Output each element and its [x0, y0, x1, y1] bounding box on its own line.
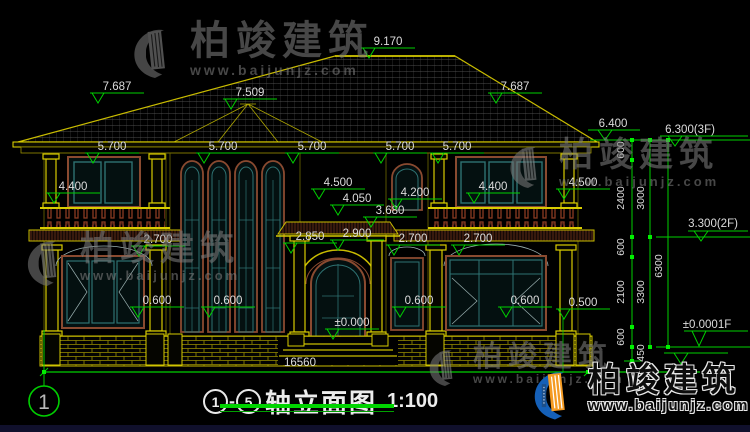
dim-mark	[453, 245, 465, 255]
company-url: www.baijunjz.com	[588, 397, 749, 414]
dim-mark	[332, 205, 344, 215]
axis-bubble-label: 1	[38, 391, 50, 414]
dim-label-k0000: ±0.000	[334, 317, 369, 329]
dim-label-k3680: 3.680	[376, 205, 405, 217]
dim-label-k5700: 5.700	[443, 141, 472, 153]
brick-plinth	[40, 334, 592, 366]
dim-mark	[287, 153, 299, 163]
dim-mark	[375, 153, 387, 163]
dim-label-total: 16560	[284, 357, 316, 369]
second-floor-windows	[68, 157, 546, 207]
dim-label-k4400: 4.400	[59, 181, 88, 193]
dim-label-k5700: 5.700	[298, 141, 327, 153]
dim-label-k4500: 4.500	[324, 177, 353, 189]
dim-label-k0600: 0.600	[143, 295, 172, 307]
dim-label-v3300: 3300	[635, 280, 647, 304]
dim-label-k9170: 9.170	[374, 36, 403, 48]
dim-label-v2400: 2400	[615, 186, 627, 210]
bottom-strip	[0, 425, 750, 432]
dim-label-k0000_1f: ±0.0001F	[683, 319, 732, 331]
drawing-scale: 1:100	[387, 390, 438, 413]
dim-label-k2850: 2.850	[296, 231, 325, 243]
company-brand: 柏竣建筑	[588, 363, 749, 396]
dim-label-k5700: 5.700	[209, 141, 238, 153]
dim-label-k3300_2f: 3.300(2F)	[688, 218, 738, 230]
dim-label-k4400: 4.400	[479, 181, 508, 193]
dim-label-k0600: 0.600	[214, 295, 243, 307]
dim-label-v3000: 3000	[635, 186, 647, 210]
dim-label-k2700: 2.700	[464, 233, 493, 245]
dim-label-k4200: 4.200	[401, 187, 430, 199]
title-underline	[220, 404, 394, 408]
dim-label-v2100: 2100	[615, 280, 627, 304]
dim-label-k6400: 6.400	[599, 118, 628, 130]
dim-label-k5700: 5.700	[98, 141, 127, 153]
company-logo: 柏竣建筑 www.baijunjz.com	[528, 363, 749, 423]
dim-mark	[198, 153, 210, 163]
dim-label-k2700: 2.700	[399, 233, 428, 245]
dim-mark	[313, 189, 325, 199]
dim-label-k4500: 4.500	[569, 177, 598, 189]
drawing-title: 轴立面图	[265, 383, 377, 420]
dim-label-k0500: 0.500	[569, 297, 598, 309]
dim-mark	[92, 93, 104, 103]
title-underline-thin	[220, 411, 394, 412]
dim-label-k7687: 7.687	[501, 81, 530, 93]
dim-label-v6300: 6300	[653, 254, 665, 278]
dim-label-v600: 600	[615, 141, 627, 159]
dim-label-k6300_3f: 6.300(3F)	[665, 124, 715, 136]
cad-canvas: 1 9.1707.6877.5097.6876.4006.300(3F)5.70…	[0, 0, 750, 432]
dim-label-v600: 600	[615, 238, 627, 256]
company-logo-icon	[528, 363, 582, 423]
dim-label-k4050: 4.050	[343, 193, 372, 205]
dim-label-v600: 600	[615, 328, 627, 346]
dim-label-k0600: 0.600	[511, 295, 540, 307]
dim-label-k5700: 5.700	[386, 141, 415, 153]
title-axis-dash: -	[229, 391, 235, 412]
drawing-title-block: 1 - 5 轴立面图 1:100	[203, 383, 438, 420]
dim-label-k7687: 7.687	[103, 81, 132, 93]
dim-label-k2900: 2.900	[343, 228, 372, 240]
dim-label-k7509: 7.509	[236, 87, 265, 99]
dim-label-k2700: 2.700	[144, 234, 173, 246]
dim-label-v450: 450	[635, 344, 647, 362]
dim-mark	[332, 240, 344, 250]
dim-label-k0600: 0.600	[405, 295, 434, 307]
main-hip-roof	[18, 56, 597, 142]
